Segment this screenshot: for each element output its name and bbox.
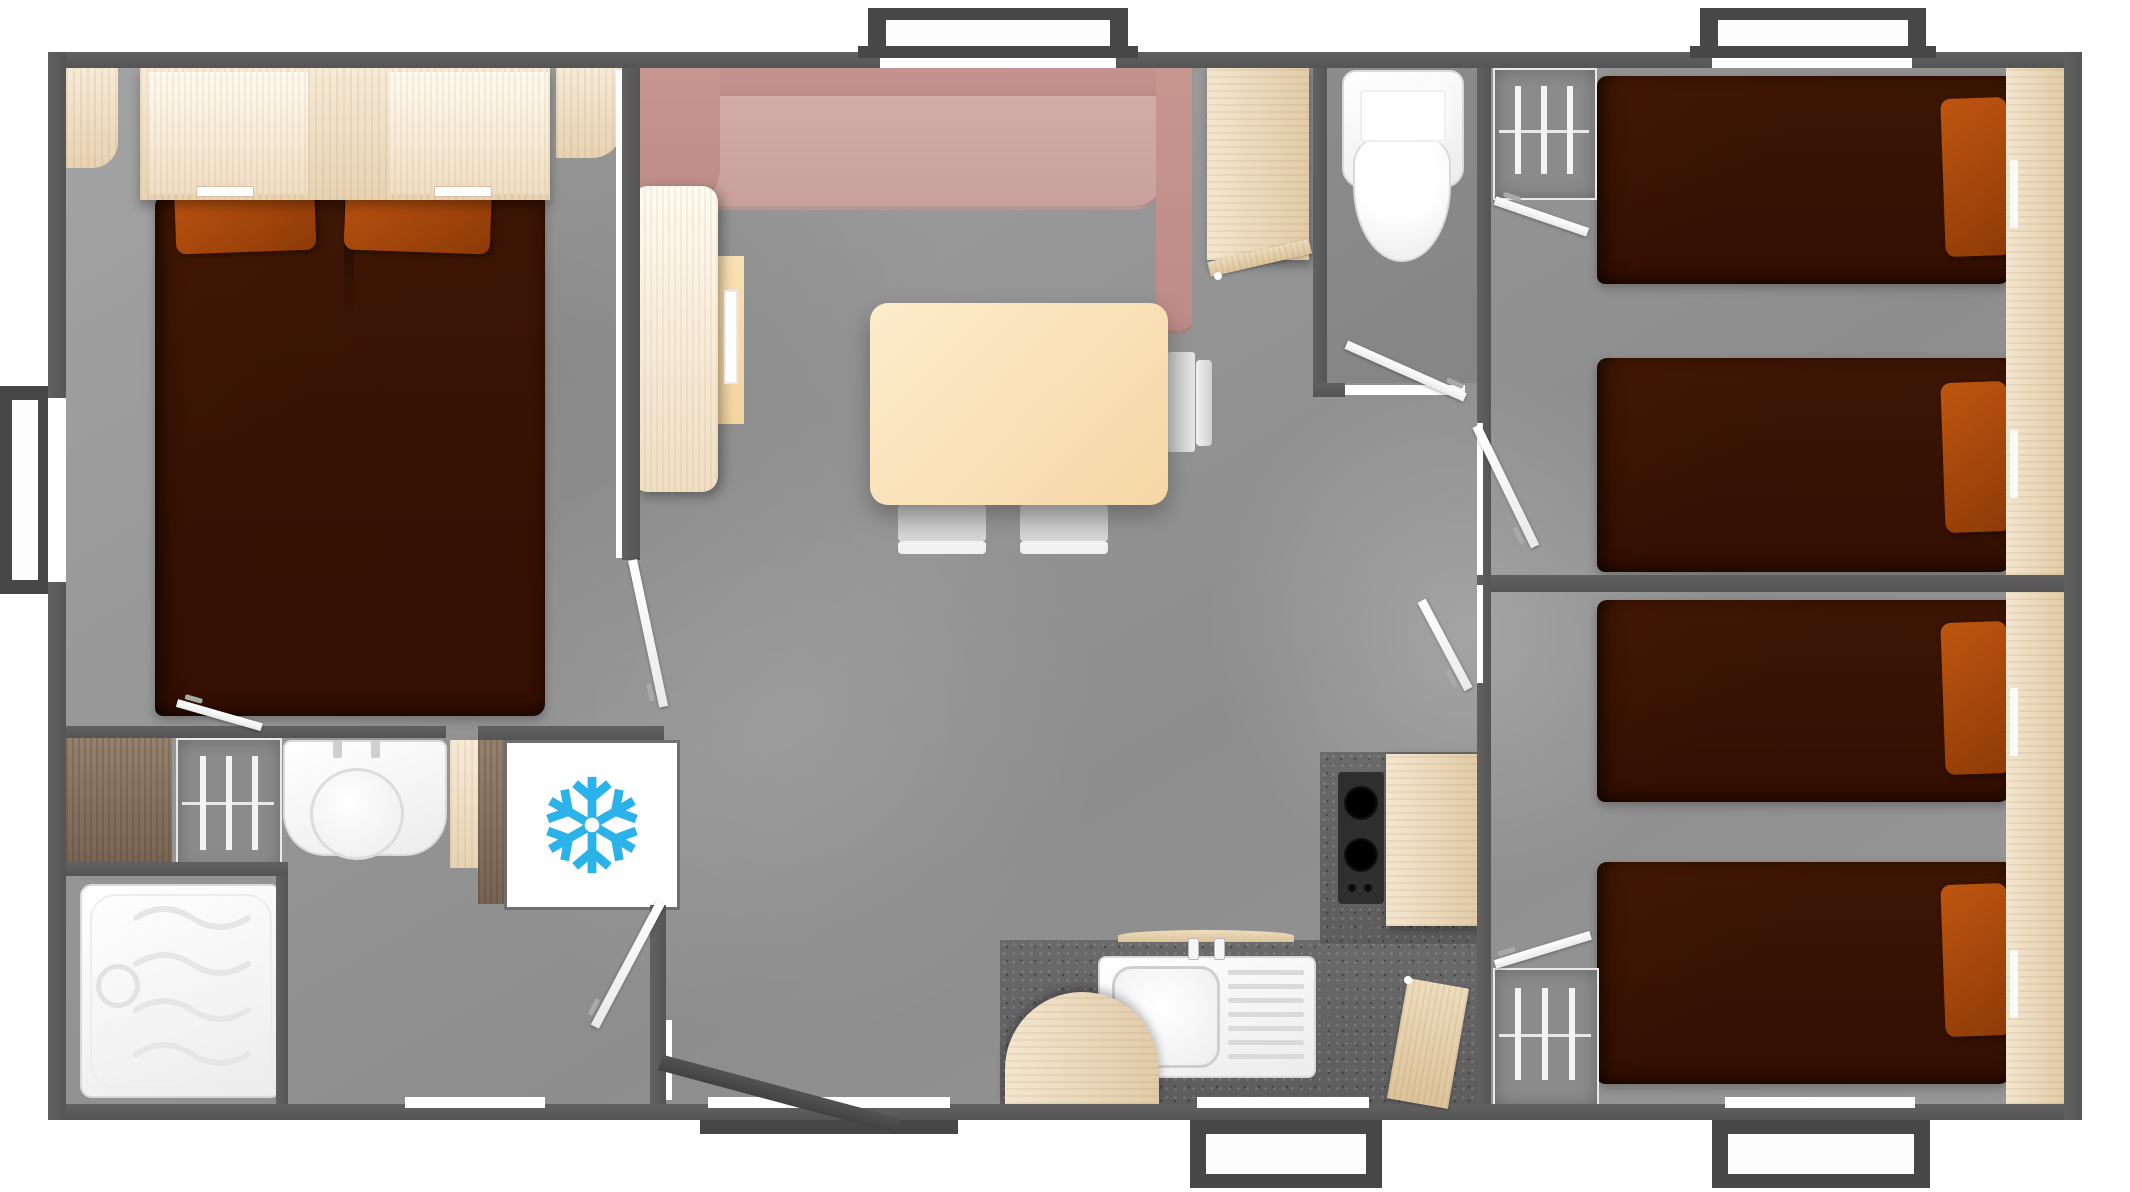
wall-above-fridge — [478, 726, 664, 740]
kitchen-cabinet-panel — [1386, 754, 1477, 926]
drainer-ridge — [1228, 1040, 1304, 1045]
pillow — [1940, 97, 2011, 257]
rail-hanger — [1569, 988, 1575, 1080]
fridge-side-panel — [478, 740, 504, 904]
chair-back — [898, 541, 986, 554]
wall-white-face — [1477, 585, 1483, 683]
bedside-shelf-strip — [2006, 592, 2064, 1104]
window-sill — [1690, 46, 1936, 58]
wall-bedroom-divider — [1490, 575, 2064, 592]
washbasin-bowl — [310, 768, 404, 860]
wall-shower-side — [276, 876, 288, 1104]
corner-sofa-arm-right — [1156, 62, 1192, 334]
wall-wc-left — [1313, 68, 1327, 397]
shower-waves — [122, 896, 272, 1076]
bed-shelf-handle — [2010, 688, 2018, 756]
window-sill — [858, 46, 1138, 58]
sink-tap — [1188, 938, 1199, 960]
wardrobe-rail-vanity — [176, 738, 282, 874]
headboard-handle — [434, 186, 492, 197]
window-glass — [1718, 20, 1908, 46]
side-cabinet-door-handle — [1214, 272, 1222, 280]
wardrobe-rail-top-bedroom — [1493, 68, 1597, 200]
fridge-freezer — [504, 740, 680, 910]
drainer-ridge — [1228, 1012, 1304, 1017]
corner-shelf-left — [66, 68, 118, 168]
window-glass — [886, 20, 1110, 46]
corner-sofa-seat — [648, 96, 1160, 210]
pillow — [1940, 883, 2011, 1037]
tap — [371, 740, 380, 758]
bed-shelf-handle — [2010, 160, 2018, 228]
wall-below-fridge — [650, 905, 666, 1104]
bed-shelf-handle — [2010, 430, 2018, 498]
rail-hanger — [1541, 86, 1547, 174]
sink-tap — [1214, 938, 1225, 960]
drainer-ridge — [1228, 1054, 1304, 1059]
snowflake-icon — [540, 773, 644, 877]
corner-shelf-right — [556, 68, 622, 158]
bedside-shelf-strip — [2006, 68, 2064, 575]
wardrobe-rail-bottom-bedroom — [1493, 968, 1599, 1108]
cabinet-flap-handle — [724, 290, 738, 384]
rail-hanger — [1515, 988, 1521, 1080]
porch-step-inner — [1728, 1134, 1914, 1174]
hob-burner — [1344, 786, 1378, 820]
wall-white-face — [616, 70, 622, 558]
hob-knob — [1348, 884, 1356, 892]
dining-table — [870, 303, 1168, 505]
gas-hob — [1338, 772, 1384, 904]
hob-burner — [1344, 838, 1378, 872]
toilet-tank-lid — [1360, 90, 1446, 142]
wall-right — [2064, 52, 2082, 1120]
wall-left — [48, 52, 66, 1120]
vanity-counter — [66, 738, 172, 870]
kitchen-door-hinge — [1404, 976, 1412, 984]
chair — [1020, 505, 1108, 541]
chair-back — [1196, 360, 1212, 446]
pillow — [1940, 381, 2011, 533]
window-opening — [405, 1097, 545, 1108]
rail-hanger — [252, 756, 258, 850]
wall-wc-bottom-stub — [1313, 383, 1345, 397]
door-opening — [1197, 1097, 1369, 1108]
drainer-ridge — [1228, 984, 1304, 989]
chair — [898, 505, 986, 541]
porch-step-inner — [1206, 1134, 1366, 1174]
rail-hanger — [1567, 86, 1573, 174]
headboard-handle — [196, 186, 254, 197]
chair — [1167, 352, 1195, 452]
window-opening — [1725, 1097, 1915, 1108]
rail-hanger — [1542, 988, 1548, 1080]
wall-shower — [66, 862, 288, 876]
drainer-ridge — [1228, 998, 1304, 1003]
sink-backsplash — [1118, 930, 1294, 942]
pillow — [1940, 621, 2011, 775]
side-cabinet — [1207, 64, 1309, 260]
tall-cabinet — [632, 186, 718, 492]
shower-tray — [80, 884, 282, 1098]
bed-shelf-handle — [2010, 950, 2018, 1018]
window-glass — [12, 400, 38, 580]
drainer-ridge — [1228, 970, 1304, 975]
rail-hanger — [200, 756, 206, 850]
entry-step-band — [700, 1120, 958, 1134]
window-opening — [48, 398, 66, 582]
hob-knob — [1364, 884, 1372, 892]
chair-back — [1020, 541, 1108, 554]
rail-hanger — [226, 756, 232, 850]
floor-plan — [0, 0, 2130, 1192]
tap — [333, 740, 342, 758]
drainer-ridge — [1228, 1026, 1304, 1031]
headboard-panel — [388, 72, 548, 194]
rail-hanger — [1515, 86, 1521, 174]
headboard-panel — [148, 72, 308, 194]
wall-master-living — [622, 68, 640, 560]
